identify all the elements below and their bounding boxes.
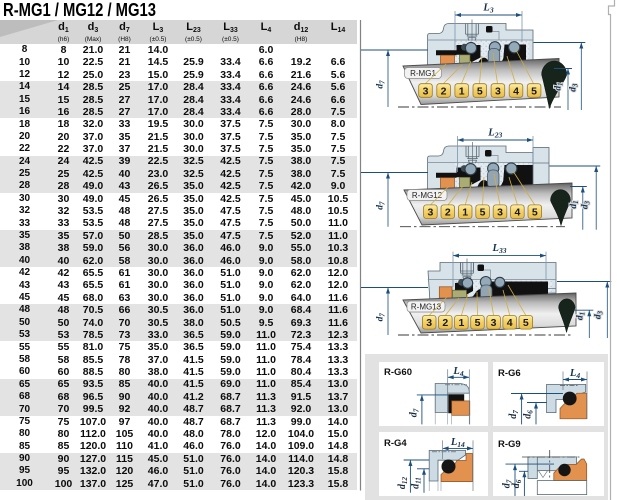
- svg-text:d7: d7: [376, 201, 387, 210]
- svg-text:d7: d7: [376, 80, 387, 89]
- svg-text:3: 3: [491, 317, 497, 329]
- svg-text:2: 2: [442, 317, 448, 329]
- svg-text:4: 4: [507, 317, 513, 329]
- svg-text:d7: d7: [508, 410, 520, 419]
- svg-text:d1: d1: [576, 312, 587, 320]
- svg-text:2: 2: [441, 85, 447, 97]
- svg-text:L33: L33: [492, 243, 507, 255]
- svg-text:5: 5: [480, 207, 486, 219]
- svg-text:d7: d7: [502, 479, 514, 488]
- svg-text:d3: d3: [594, 310, 605, 319]
- svg-text:1: 1: [459, 85, 465, 97]
- svg-text:3: 3: [426, 317, 432, 329]
- svg-text:R-G4: R-G4: [384, 438, 407, 449]
- svg-text:L4: L4: [569, 368, 580, 380]
- svg-text:4: 4: [513, 85, 519, 97]
- svg-text:d1: d1: [569, 200, 580, 208]
- svg-text:5: 5: [531, 85, 537, 97]
- svg-text:5: 5: [523, 317, 529, 329]
- svg-text:d7: d7: [408, 408, 420, 417]
- svg-text:L23: L23: [487, 128, 502, 140]
- svg-text:d12: d12: [397, 477, 409, 490]
- svg-text:R-MG1: R-MG1: [410, 69, 436, 78]
- svg-text:R-MG13: R-MG13: [411, 303, 442, 312]
- svg-text:2: 2: [445, 207, 451, 219]
- svg-text:5: 5: [477, 85, 483, 97]
- svg-text:d11: d11: [411, 477, 423, 489]
- svg-text:d3: d3: [581, 200, 592, 209]
- svg-text:4: 4: [514, 207, 520, 219]
- svg-text:L4: L4: [452, 366, 463, 378]
- svg-text:d3: d3: [569, 83, 580, 92]
- svg-text:5: 5: [532, 207, 538, 219]
- svg-text:R-MG12: R-MG12: [412, 191, 443, 200]
- svg-text:1: 1: [462, 207, 468, 219]
- svg-text:3: 3: [427, 207, 433, 219]
- svg-text:5: 5: [475, 317, 481, 329]
- svg-text:3: 3: [497, 207, 503, 219]
- svg-text:R-G9: R-G9: [498, 439, 521, 450]
- svg-text:L3: L3: [482, 3, 493, 15]
- svg-text:R-G6: R-G6: [498, 368, 521, 379]
- svg-text:d6: d6: [523, 410, 535, 419]
- svg-text:R-G60: R-G60: [384, 367, 412, 378]
- svg-text:L14: L14: [450, 437, 465, 449]
- svg-text:d1: d1: [554, 82, 565, 90]
- svg-text:3: 3: [495, 85, 501, 97]
- svg-text:1: 1: [458, 317, 464, 329]
- svg-text:d7: d7: [376, 313, 387, 322]
- svg-text:d6: d6: [511, 479, 523, 488]
- svg-text:3: 3: [423, 85, 429, 97]
